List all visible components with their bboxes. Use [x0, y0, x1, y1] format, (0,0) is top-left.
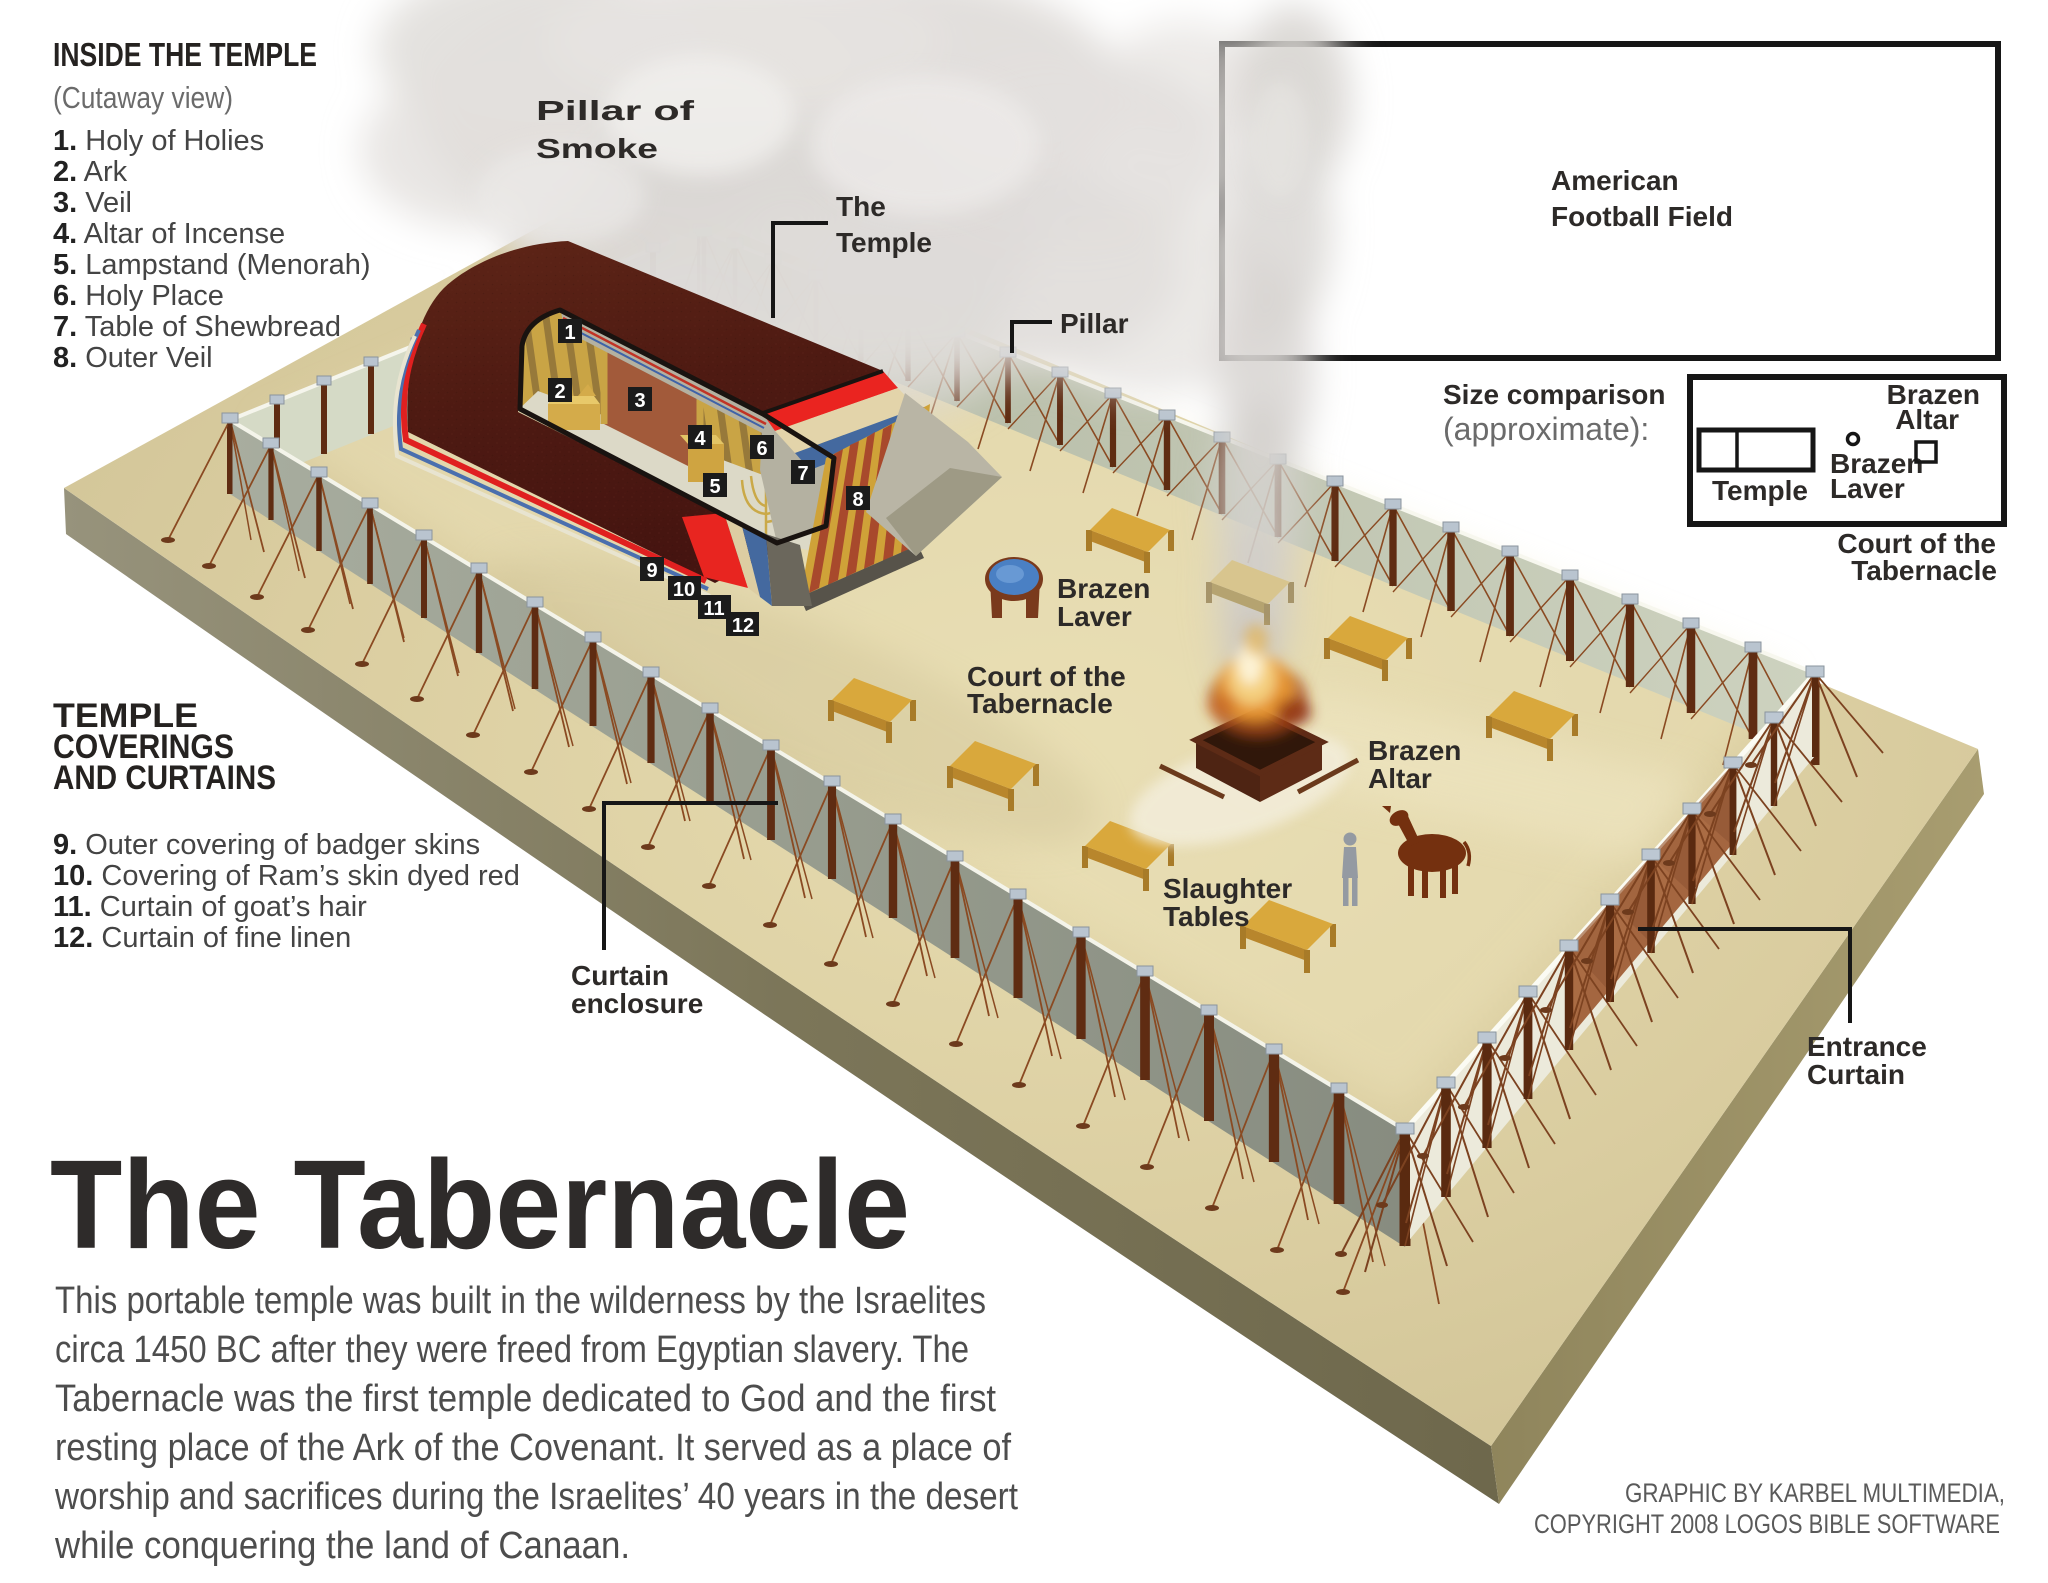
svg-text:5. Lampstand (Menorah): 5. Lampstand (Menorah): [53, 249, 371, 281]
svg-text:4: 4: [694, 428, 706, 450]
svg-text:1: 1: [564, 322, 575, 344]
svg-text:Temple: Temple: [1712, 475, 1808, 506]
svg-text:The: The: [836, 191, 886, 222]
svg-text:Pillar: Pillar: [1060, 308, 1129, 339]
svg-text:6. Holy Place: 6. Holy Place: [53, 280, 224, 312]
svg-text:AND CURTAINS: AND CURTAINS: [53, 759, 276, 797]
svg-text:8: 8: [852, 489, 863, 511]
svg-text:(Cutaway view): (Cutaway view): [53, 80, 233, 115]
svg-text:COPYRIGHT 2008 LOGOS BIBLE SOF: COPYRIGHT 2008 LOGOS BIBLE SOFTWARE: [1534, 1509, 2000, 1539]
svg-text:1. Holy of Holies: 1. Holy of Holies: [53, 125, 264, 157]
svg-text:9: 9: [646, 560, 657, 582]
svg-text:7. Table of Shewbread: 7. Table of Shewbread: [53, 311, 341, 343]
svg-text:GRAPHIC BY KARBEL MULTIMEDIA,: GRAPHIC BY KARBEL MULTIMEDIA,: [1625, 1478, 2005, 1508]
svg-text:Size comparison: Size comparison: [1443, 379, 1666, 410]
svg-text:American: American: [1551, 165, 1679, 196]
svg-text:Entrance: Entrance: [1807, 1031, 1927, 1062]
svg-text:10: 10: [673, 579, 695, 601]
svg-text:Pillar of: Pillar of: [536, 95, 695, 126]
svg-text:This portable temple was built: This portable temple was built in the wi…: [55, 1280, 986, 1322]
svg-text:4. Altar of Incense: 4. Altar of Incense: [53, 218, 285, 250]
svg-text:3: 3: [634, 390, 645, 412]
svg-text:Smoke: Smoke: [536, 133, 658, 164]
svg-text:Brazen: Brazen: [1057, 573, 1150, 604]
svg-text:8. Outer Veil: 8. Outer Veil: [53, 342, 213, 374]
svg-text:11. Curtain of goat’s hair: 11. Curtain of goat’s hair: [53, 891, 367, 923]
svg-text:Altar: Altar: [1368, 763, 1432, 794]
svg-text:while conquering the land of C: while conquering the land of Canaan.: [54, 1525, 630, 1567]
svg-text:Tables: Tables: [1163, 901, 1250, 932]
svg-text:worship and sacrifices during: worship and sacrifices during the Israel…: [54, 1476, 1018, 1518]
svg-text:Laver: Laver: [1057, 601, 1132, 632]
svg-text:resting place of the Ark of th: resting place of the Ark of the Covenant…: [55, 1427, 1011, 1469]
svg-text:3. Veil: 3. Veil: [53, 187, 132, 219]
svg-text:12. Curtain of fine linen: 12. Curtain of fine linen: [53, 922, 351, 954]
svg-text:12: 12: [732, 615, 754, 637]
svg-text:5: 5: [709, 476, 720, 498]
svg-text:enclosure: enclosure: [571, 988, 703, 1019]
svg-text:Brazen: Brazen: [1368, 735, 1461, 766]
svg-text:Curtain: Curtain: [1807, 1059, 1905, 1090]
svg-text:The Tabernacle: The Tabernacle: [50, 1134, 910, 1275]
svg-text:INSIDE THE TEMPLE: INSIDE THE TEMPLE: [53, 36, 317, 73]
svg-text:Slaughter: Slaughter: [1163, 873, 1292, 904]
svg-text:Tabernacle: Tabernacle: [1851, 555, 1997, 586]
svg-text:6: 6: [756, 438, 767, 460]
svg-text:Altar: Altar: [1895, 404, 1959, 435]
svg-text:10. Covering of Ram’s skin dye: 10. Covering of Ram’s skin dyed red: [53, 860, 520, 892]
svg-text:circa 1450 BC after they were: circa 1450 BC after they were freed from…: [55, 1329, 969, 1371]
svg-text:Tabernacle: Tabernacle: [967, 688, 1113, 719]
svg-text:Laver: Laver: [1830, 473, 1905, 504]
svg-text:Curtain: Curtain: [571, 960, 669, 991]
svg-text:2. Ark: 2. Ark: [53, 156, 128, 188]
svg-text:Tabernacle was the first templ: Tabernacle was the first temple dedicate…: [55, 1378, 996, 1420]
svg-text:2: 2: [554, 381, 565, 403]
svg-text:(approximate):: (approximate):: [1443, 411, 1649, 447]
svg-text:9. Outer covering of badger sk: 9. Outer covering of badger skins: [53, 829, 480, 861]
svg-text:7: 7: [797, 463, 808, 485]
svg-text:Temple: Temple: [836, 227, 932, 258]
svg-text:Football Field: Football Field: [1551, 201, 1733, 232]
svg-text:11: 11: [703, 598, 724, 620]
